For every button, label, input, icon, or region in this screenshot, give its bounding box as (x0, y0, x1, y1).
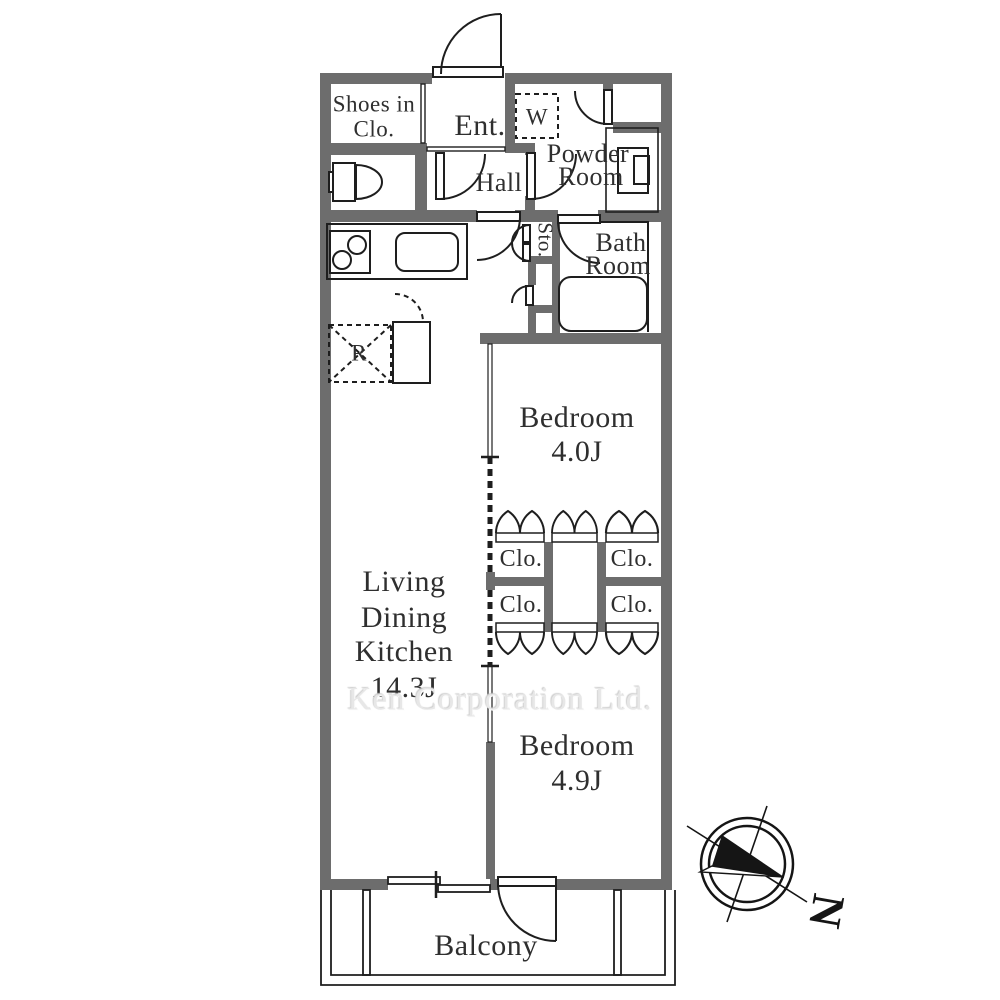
label-ldk-line2: Dining (361, 603, 447, 633)
cabinet-icon (393, 322, 430, 383)
compass-icon (687, 806, 807, 922)
balcony-partition (363, 890, 370, 975)
label-balcony: Balcony (434, 931, 537, 961)
label-storage: Sto. (535, 222, 556, 257)
label-powder-room-line2: Room (558, 164, 624, 190)
label-refrigerator: R (351, 342, 367, 365)
floorplan-page: Shoes in Clo. Ent. W Powder Room Hall St… (0, 0, 1000, 1000)
label-closet-bottom-right: Clo. (611, 593, 654, 617)
sink-icon (396, 233, 458, 271)
sliding-window-icon (388, 871, 490, 898)
watermark: Ken Corporation Ltd. (347, 682, 652, 719)
refrigerator-icon (329, 294, 430, 383)
floorplan-drawing (0, 0, 1000, 1000)
label-entrance: Ent. (454, 111, 505, 141)
balcony-partition (614, 890, 621, 975)
label-ldk-line1: Living (363, 567, 446, 597)
label-bath-room-line2: Room (585, 253, 651, 279)
kitchen-counter-icon (327, 224, 467, 279)
label-washer: W (526, 106, 548, 129)
label-closet-top-left: Clo. (500, 547, 543, 571)
label-shoes-closet-line2: Clo. (354, 118, 395, 141)
label-bedroom-2-name: Bedroom (519, 731, 634, 761)
label-closet-bottom-left: Clo. (500, 593, 543, 617)
toilet-icon (329, 163, 382, 201)
label-bedroom-2-size: 4.9J (551, 766, 602, 796)
label-hall: Hall (476, 170, 523, 196)
bathtub-icon (559, 277, 647, 331)
label-shoes-closet-line1: Shoes in (333, 93, 416, 116)
label-ldk-line3: Kitchen (355, 637, 453, 667)
entrance-door-icon (433, 14, 503, 77)
label-bedroom-1-size: 4.0J (551, 437, 602, 467)
label-bedroom-1-name: Bedroom (519, 403, 634, 433)
upper-closet-door-icon (575, 90, 612, 124)
label-closet-top-right: Clo. (611, 547, 654, 571)
